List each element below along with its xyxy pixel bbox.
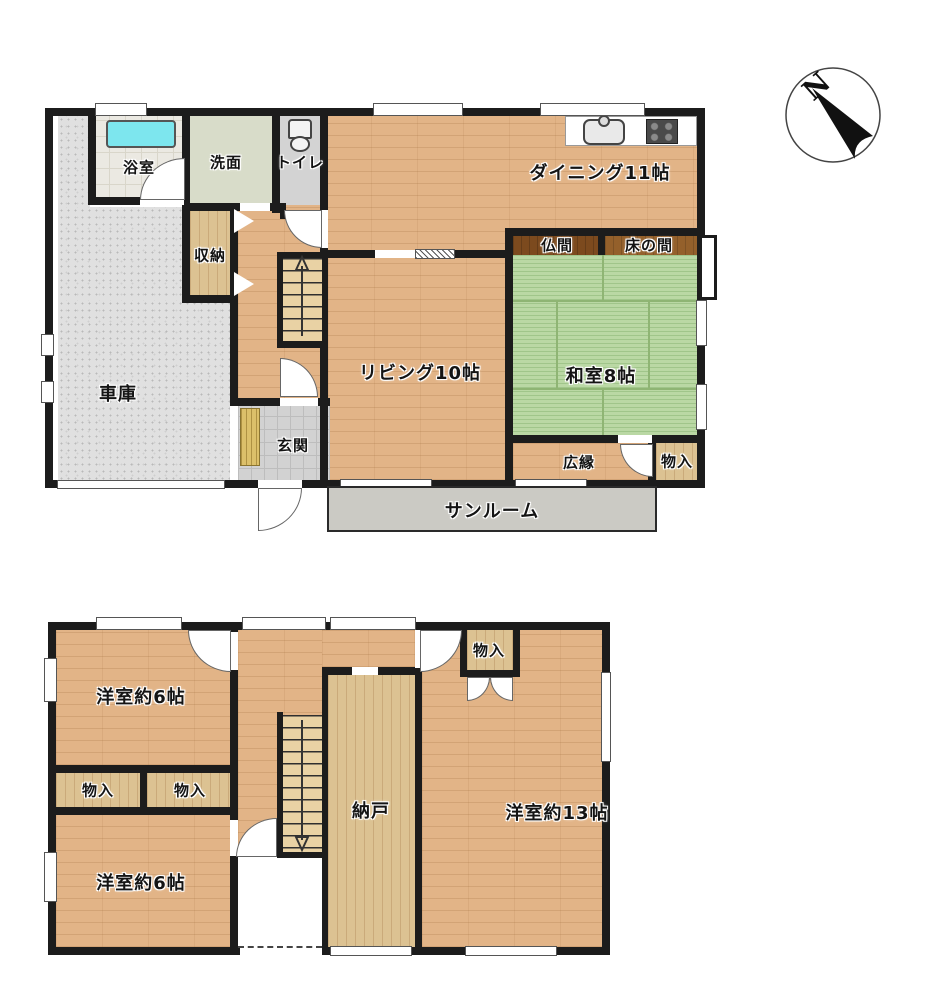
- door-opening: [618, 435, 652, 443]
- door-opening: [230, 632, 238, 670]
- window: [41, 334, 54, 356]
- window: [44, 852, 57, 902]
- room-label: 洋室約13帖: [505, 799, 608, 825]
- door-opening: [280, 398, 318, 406]
- room-label: 仏間: [541, 235, 573, 256]
- room-garage: [58, 207, 188, 302]
- window: [330, 617, 416, 630]
- room-washitsu: [513, 255, 697, 436]
- room-label: 洗面: [210, 152, 242, 173]
- room-label: 収納: [194, 245, 226, 266]
- bathtub: [106, 120, 176, 148]
- window: [465, 946, 557, 956]
- room-label: 広縁: [563, 452, 595, 473]
- genkan-step: [240, 408, 260, 466]
- window: [41, 381, 54, 403]
- room-label: 納戸: [352, 797, 390, 823]
- window: [540, 103, 645, 116]
- tatami-line: [513, 300, 697, 302]
- window: [95, 103, 147, 116]
- wall: [88, 108, 96, 205]
- wall: [48, 765, 237, 773]
- wall: [230, 203, 238, 406]
- toilet-icon: [290, 136, 310, 152]
- room-label: 洋室約6帖: [96, 683, 186, 709]
- room-label: サンルーム: [445, 497, 539, 523]
- room-label: 物入: [82, 780, 114, 801]
- window: [696, 300, 707, 346]
- void-area: [238, 857, 322, 947]
- wall: [48, 947, 240, 955]
- wall: [598, 236, 605, 255]
- wall: [505, 435, 705, 443]
- door-opening: [240, 203, 270, 211]
- wall: [48, 807, 237, 815]
- wall: [140, 773, 147, 807]
- tatami-line: [648, 300, 650, 389]
- window: [696, 384, 707, 430]
- wall: [45, 108, 53, 488]
- room-garage: [58, 116, 90, 208]
- tatami-line: [513, 388, 697, 390]
- compass: N: [775, 58, 895, 178]
- sliding-door: [415, 249, 455, 259]
- room-label: 車庫: [99, 380, 137, 406]
- stairs-up-arrow: [277, 252, 325, 347]
- tatami-line: [602, 388, 604, 436]
- room-label: トイレ: [276, 152, 324, 173]
- room-label: 物入: [473, 640, 505, 661]
- room-label: ダイニング11帖: [529, 159, 670, 185]
- room-label: 洋室約6帖: [96, 869, 186, 895]
- window: [330, 946, 412, 956]
- wall: [460, 670, 520, 677]
- wall: [513, 622, 520, 677]
- room-label: 物入: [174, 780, 206, 801]
- room-label: 玄関: [277, 435, 309, 456]
- kitchen-stove-icon: [646, 119, 678, 144]
- opening: [375, 250, 415, 258]
- window: [601, 672, 611, 762]
- garage-door-opening: [57, 480, 225, 489]
- window: [96, 617, 182, 630]
- room-label: 物入: [661, 451, 693, 472]
- stairs-down-arrow: [277, 712, 325, 857]
- open-boundary-dashed: [238, 946, 322, 948]
- room-label: 床の間: [625, 235, 673, 256]
- window: [44, 658, 57, 702]
- wall: [230, 622, 238, 955]
- entrance-door: [258, 488, 302, 531]
- kitchen-faucet-icon: [598, 115, 610, 127]
- room-garage: [58, 300, 230, 482]
- room-label: リビング10帖: [359, 359, 481, 385]
- room-label: 和室8帖: [566, 362, 637, 388]
- window: [242, 617, 326, 630]
- room-label: 浴室: [123, 157, 155, 178]
- wall: [505, 228, 705, 236]
- tatami-line: [602, 255, 604, 301]
- tatami-line: [556, 300, 558, 389]
- tokonoma-bumpout: [699, 235, 717, 300]
- floor-plan-canvas: 浴室 洗面 トイレ 収納 ダイニング11帖 仏間 床の間 和室8帖 リビング10…: [0, 0, 948, 1000]
- door-opening: [352, 667, 378, 675]
- window: [373, 103, 463, 116]
